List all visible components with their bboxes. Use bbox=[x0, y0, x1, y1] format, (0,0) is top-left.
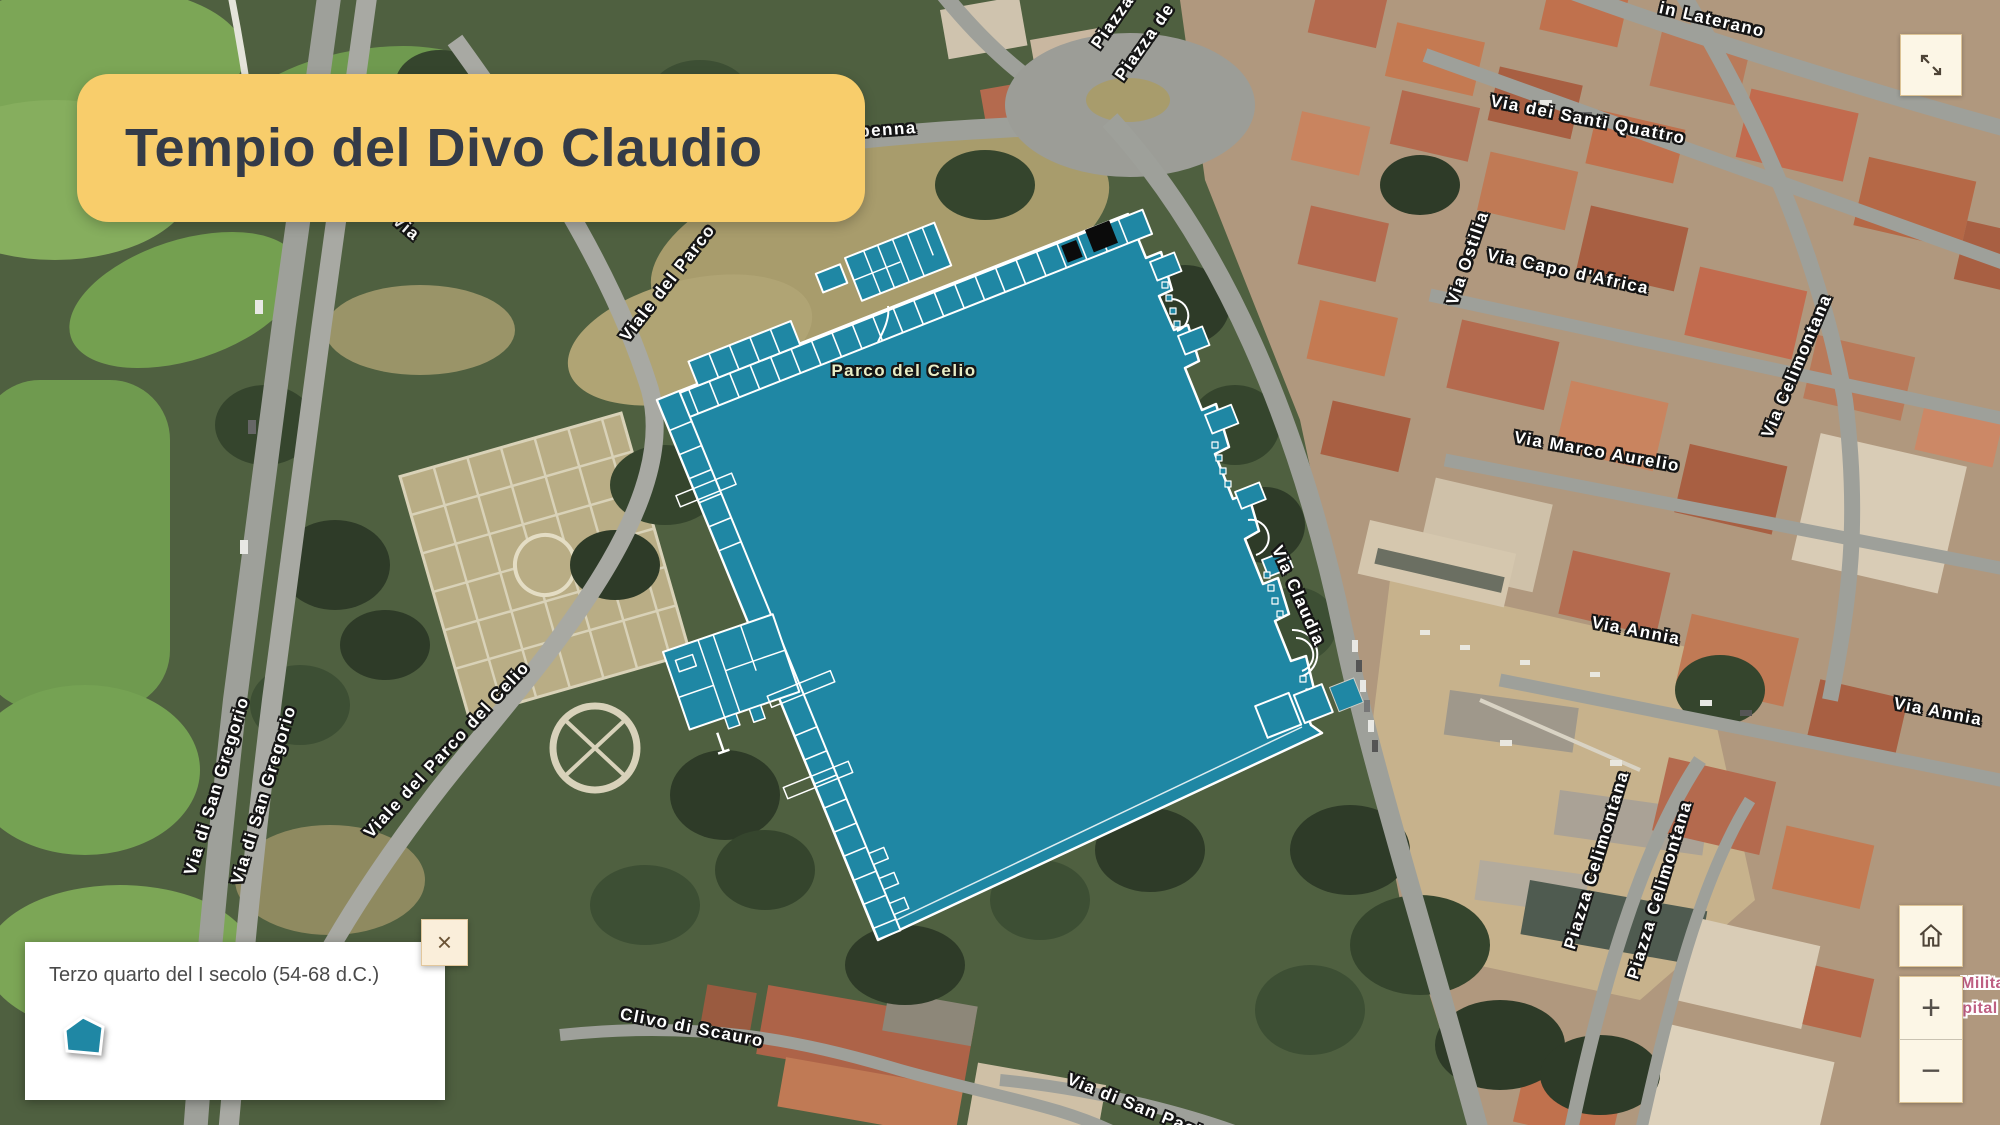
page-title: Tempio del Divo Claudio bbox=[125, 117, 763, 179]
close-icon: × bbox=[437, 927, 452, 958]
zoom-controls: + − bbox=[1899, 976, 1963, 1103]
plus-icon: + bbox=[1921, 989, 1941, 1028]
legend-close-button[interactable]: × bbox=[421, 919, 468, 966]
legend-swatch bbox=[61, 1014, 107, 1064]
fullscreen-button[interactable] bbox=[1900, 34, 1962, 96]
legend-panel: Terzo quarto del I secolo (54-68 d.C.) bbox=[25, 942, 445, 1100]
minus-icon: − bbox=[1921, 1052, 1941, 1091]
map-viewport: Via di San GregorioVia di San GregorioVi… bbox=[0, 0, 2000, 1125]
temple-plan-polygon[interactable] bbox=[657, 214, 1322, 940]
title-banner: Tempio del Divo Claudio bbox=[77, 74, 865, 222]
home-icon bbox=[1915, 920, 1947, 952]
home-button[interactable] bbox=[1899, 905, 1963, 967]
zoom-in-button[interactable]: + bbox=[1899, 976, 1963, 1040]
zoom-out-button[interactable]: − bbox=[1899, 1040, 1963, 1103]
expand-arrows-icon bbox=[1916, 50, 1946, 80]
legend-title: Terzo quarto del I secolo (54-68 d.C.) bbox=[49, 964, 379, 987]
